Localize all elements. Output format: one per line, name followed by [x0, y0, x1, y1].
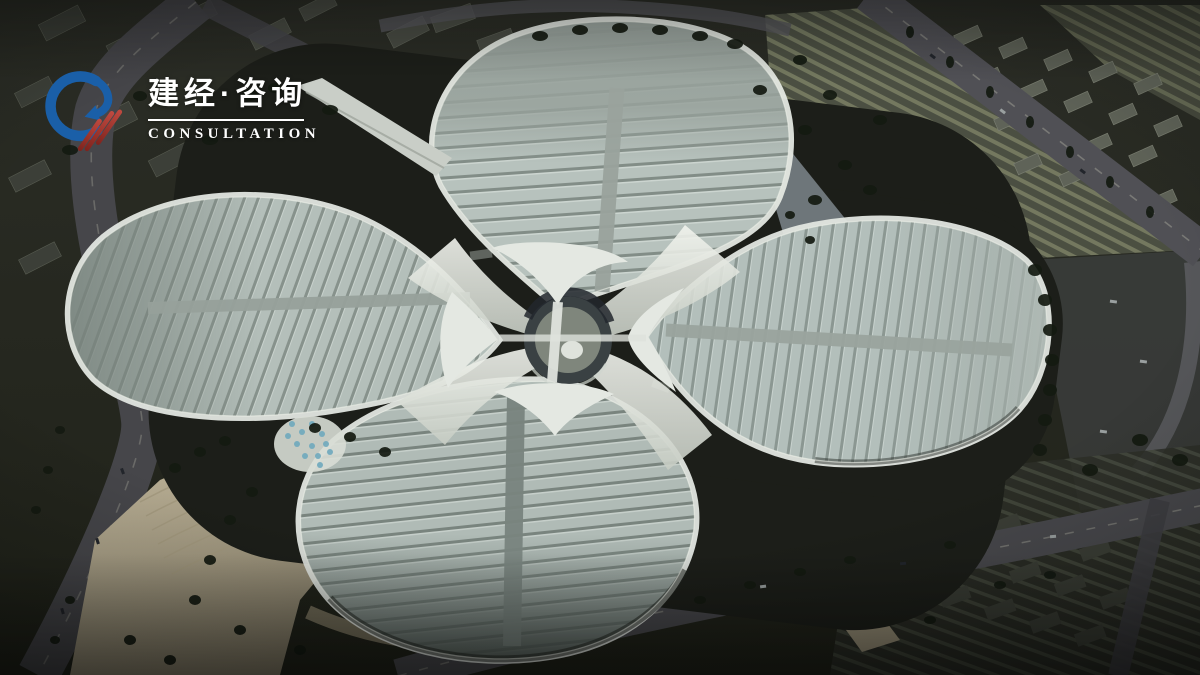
aerial-rendering-scene: 建经·咨询 CONSULTATION: [0, 0, 1200, 675]
logo-blue-ring: [51, 76, 98, 135]
brand-name-chinese: 建经·咨询: [148, 77, 320, 111]
hub-bridge-ns: [552, 302, 558, 382]
brand-text-block: 建经·咨询 CONSULTATION: [148, 77, 320, 142]
brand-name-english: CONSULTATION: [148, 126, 320, 143]
brand-logo-icon: [40, 64, 132, 156]
hall-south-spine: [512, 394, 516, 646]
brand-watermark: 建经·咨询 CONSULTATION: [40, 64, 320, 156]
brand-divider-line: [148, 119, 304, 121]
skylight-cluster: [274, 416, 346, 472]
hub-center-canopy: [561, 341, 583, 359]
